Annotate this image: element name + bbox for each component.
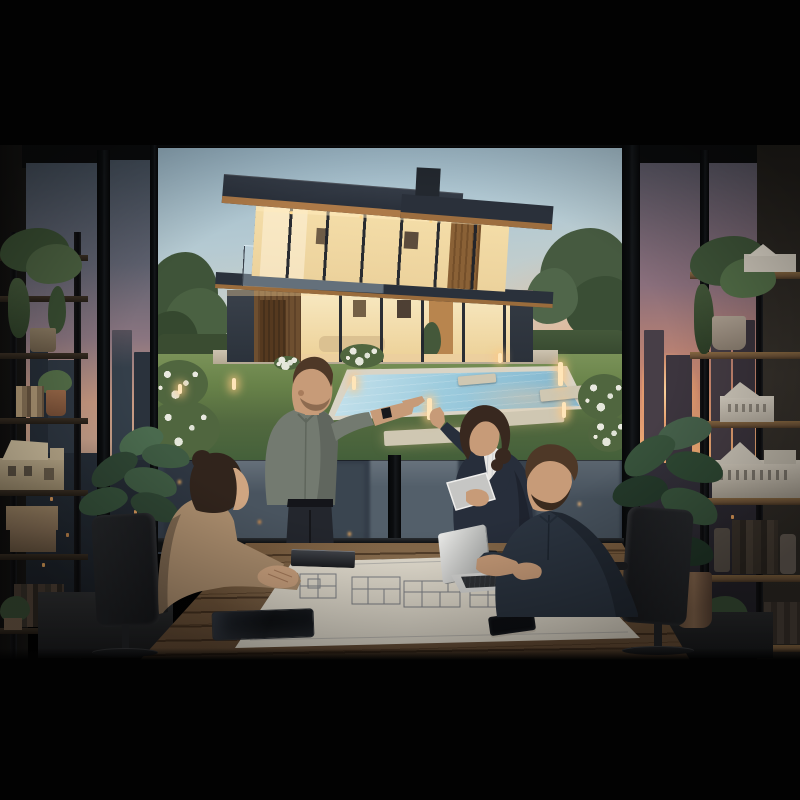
letterbox-bottom <box>0 648 800 800</box>
photo-real-estate-meeting <box>0 0 800 800</box>
letterbox-top <box>0 0 800 145</box>
vignette <box>0 143 800 660</box>
